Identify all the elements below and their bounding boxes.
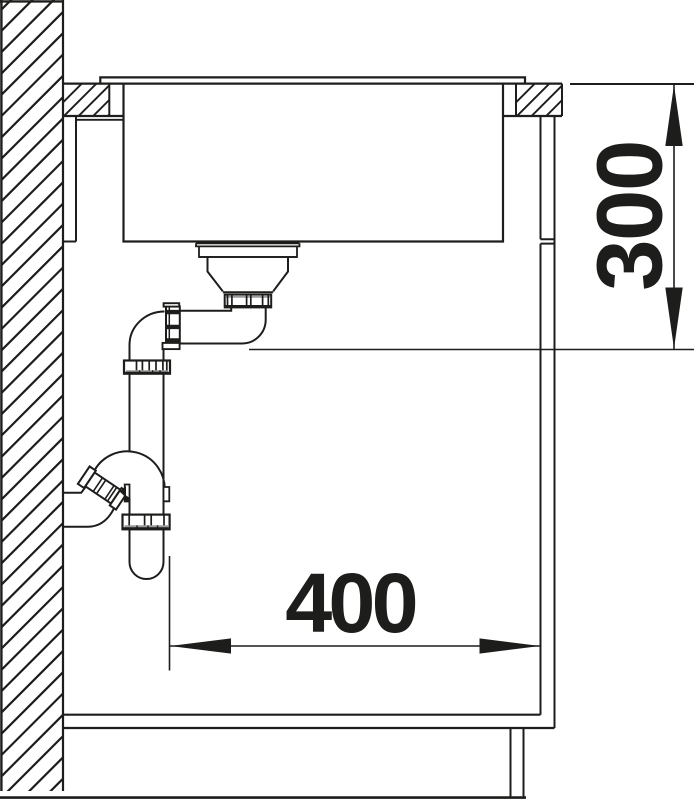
svg-text:300: 300	[578, 141, 682, 291]
svg-text:400: 400	[285, 556, 415, 650]
